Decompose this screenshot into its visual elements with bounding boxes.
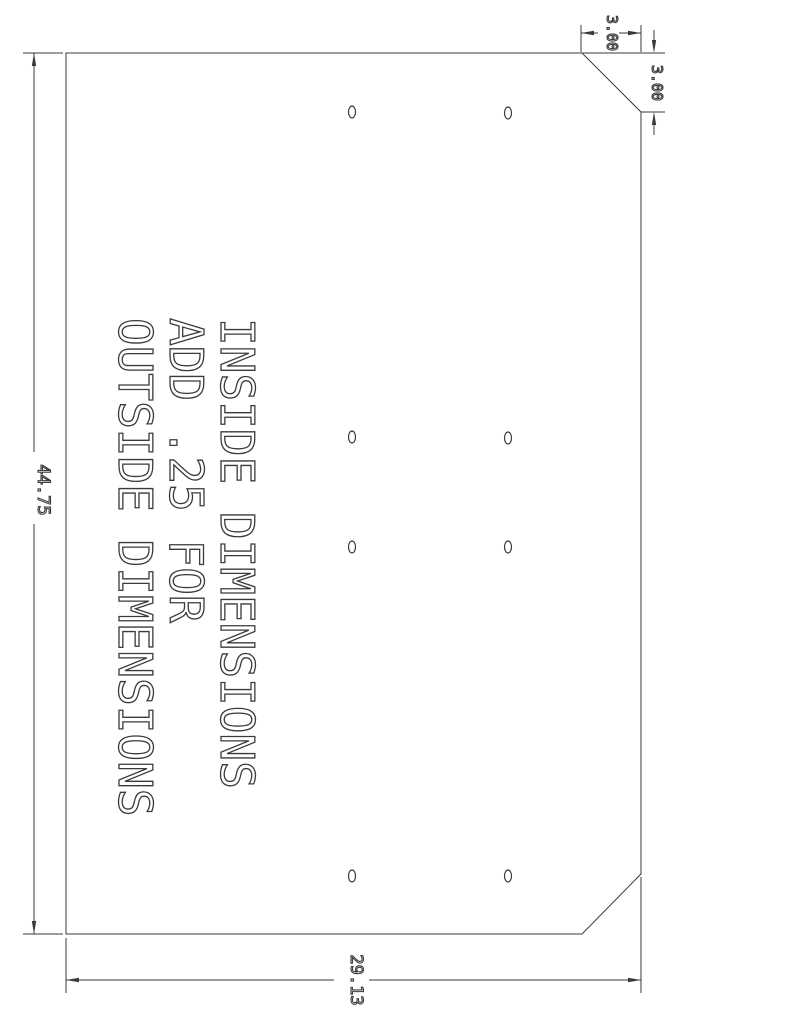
note-line-2: ADD .25 FOR — [160, 318, 211, 833]
hole-marker — [505, 432, 512, 444]
drawing-note: INSIDE DIMENSIONS ADD .25 FOR OUTSIDE DI… — [109, 318, 262, 833]
hole-marker — [349, 106, 356, 118]
arrowhead-left — [66, 978, 79, 982]
arrowhead-right — [628, 31, 641, 35]
hole-markers — [349, 106, 512, 882]
dimension-label-overall-height: 44.75 — [33, 460, 53, 520]
arrowhead-right — [628, 978, 641, 982]
dimension-label-overall-width: 29.13 — [346, 952, 366, 1008]
hole-marker — [505, 870, 512, 882]
arrowhead-down — [652, 40, 656, 53]
dimension-label-chamfer-height: 3.00 — [648, 63, 665, 103]
hole-marker — [505, 107, 512, 119]
arrowhead-up — [652, 112, 656, 125]
hole-marker — [349, 431, 356, 443]
hole-marker — [349, 870, 356, 882]
note-line-1: INSIDE DIMENSIONS — [211, 318, 262, 833]
arrowhead-left — [581, 31, 594, 35]
cad-drawing-sheet: INSIDE DIMENSIONS ADD .25 FOR OUTSIDE DI… — [0, 0, 791, 1024]
dimension-label-chamfer-width: 3.00 — [603, 13, 620, 53]
arrowhead-down — [32, 921, 36, 934]
hole-marker — [505, 541, 512, 553]
arrowhead-up — [32, 53, 36, 66]
note-line-3: OUTSIDE DIMENSIONS — [109, 318, 160, 833]
hole-marker — [349, 541, 356, 553]
